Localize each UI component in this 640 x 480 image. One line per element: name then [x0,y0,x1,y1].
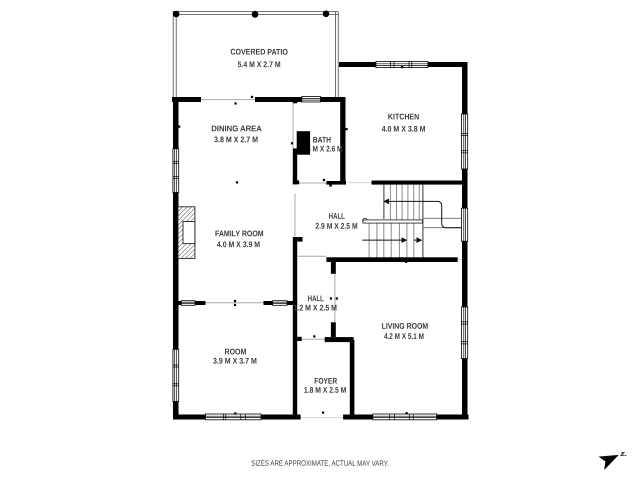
svg-text:5.4 M X 2.7 M: 5.4 M X 2.7 M [238,60,281,69]
svg-text:4.0 M X 3.8 M: 4.0 M X 3.8 M [382,125,426,134]
svg-text:ROOM: ROOM [224,347,246,356]
svg-text:1.2 M X 2.5 M: 1.2 M X 2.5 M [294,303,338,312]
svg-text:LIVING ROOM: LIVING ROOM [382,322,429,331]
svg-text:3.9 M X 3.7 M: 3.9 M X 3.7 M [213,357,257,366]
svg-text:1.8 M X 2.5 M: 1.8 M X 2.5 M [304,386,347,395]
svg-text:HALL: HALL [308,294,324,303]
svg-text:HALL: HALL [329,212,345,221]
svg-text:4.0 M X 3.9 M: 4.0 M X 3.9 M [217,240,260,249]
svg-text:COVERED PATIO: COVERED PATIO [230,48,288,57]
svg-text:4.2 M X 5.1 M: 4.2 M X 5.1 M [384,332,424,341]
svg-text:FAMILY ROOM: FAMILY ROOM [215,229,264,238]
svg-text:SIZES ARE APPROXIMATE, ACTUAL: SIZES ARE APPROXIMATE, ACTUAL MAY VARY. [251,459,389,468]
svg-text:3.8 M X 2.7 M: 3.8 M X 2.7 M [214,135,258,144]
svg-text:BATH: BATH [313,135,331,144]
svg-text:DINING AREA: DINING AREA [211,124,262,133]
svg-text:KITCHEN: KITCHEN [388,112,419,121]
svg-text:FOYER: FOYER [314,377,337,386]
svg-text:2.9 M X 2.5 M: 2.9 M X 2.5 M [315,222,357,231]
